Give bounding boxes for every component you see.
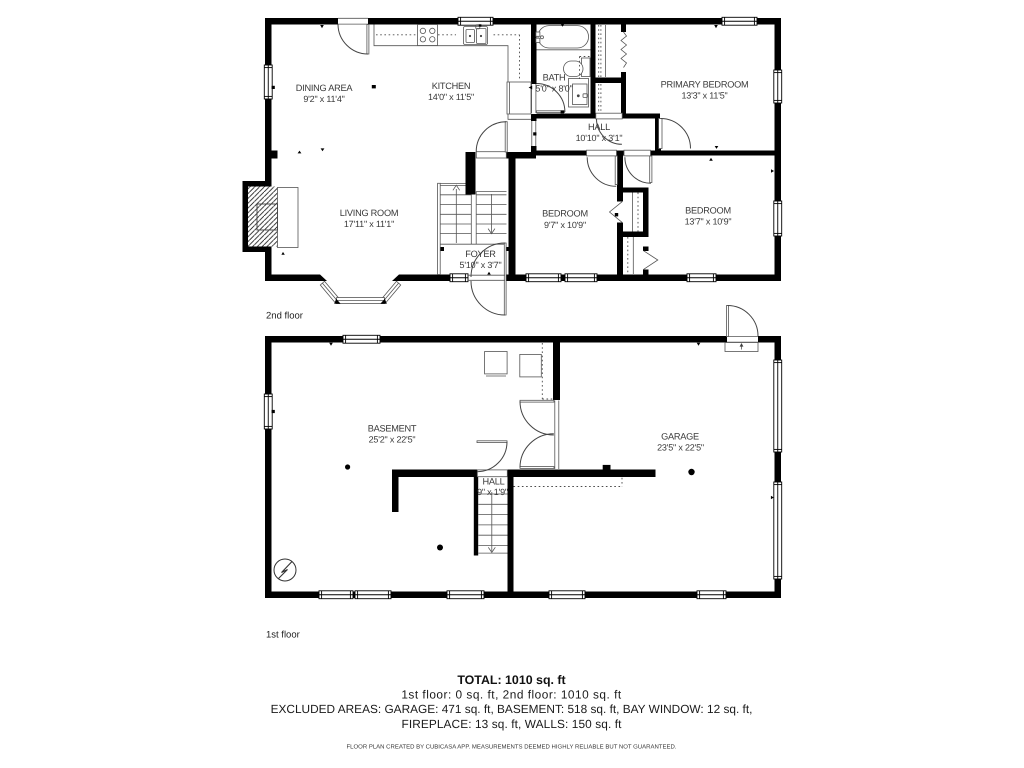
- svg-text:10'10" x 3'1": 10'10" x 3'1": [576, 133, 623, 143]
- svg-text:5'10" x 3'7": 5'10" x 3'7": [460, 260, 502, 270]
- svg-text:KITCHEN: KITCHEN: [432, 81, 471, 91]
- svg-text:17'11" x 11'1": 17'11" x 11'1": [344, 219, 394, 229]
- svg-text:PRIMARY BEDROOM: PRIMARY BEDROOM: [661, 80, 749, 90]
- svg-text:FIREPLACE: 13 sq. ft, WALLS: 1: FIREPLACE: 13 sq. ft, WALLS: 150 sq. ft: [401, 717, 622, 731]
- svg-text:GARAGE: GARAGE: [661, 432, 699, 442]
- svg-text:HALL: HALL: [483, 477, 505, 487]
- svg-text:14'0" x 11'5": 14'0" x 11'5": [428, 92, 474, 102]
- svg-text:EXCLUDED AREAS: GARAGE: 471 sq: EXCLUDED AREAS: GARAGE: 471 sq. ft, BASE…: [271, 702, 753, 716]
- svg-text:FLOOR PLAN CREATED BY CUBICASA: FLOOR PLAN CREATED BY CUBICASA APP. MEAS…: [347, 744, 677, 751]
- svg-text:13'7" x 10'9": 13'7" x 10'9": [685, 217, 732, 227]
- svg-text:DINING AREA: DINING AREA: [296, 83, 354, 93]
- svg-text:BEDROOM: BEDROOM: [685, 205, 731, 215]
- svg-text:13'3" x 11'5": 13'3" x 11'5": [681, 91, 727, 101]
- svg-text:9" x 1'9": 9" x 1'9": [477, 487, 508, 497]
- svg-text:LIVING ROOM: LIVING ROOM: [340, 208, 399, 218]
- svg-text:23'5" x 22'5": 23'5" x 22'5": [657, 443, 704, 453]
- svg-text:2nd floor: 2nd floor: [266, 311, 303, 322]
- svg-text:25'2" x 22'5": 25'2" x 22'5": [369, 435, 416, 445]
- svg-text:1st floor: 0 sq. ft, 2nd floor: 1st floor: 0 sq. ft, 2nd floor: 1010 sq.…: [401, 688, 622, 702]
- svg-text:1st floor: 1st floor: [266, 630, 300, 641]
- svg-text:FOYER: FOYER: [465, 249, 496, 259]
- svg-text:9'7" x 10'9": 9'7" x 10'9": [544, 220, 586, 230]
- svg-text:9'2" x 11'4": 9'2" x 11'4": [303, 94, 344, 104]
- svg-text:BATH: BATH: [543, 72, 566, 82]
- svg-text:BEDROOM: BEDROOM: [542, 208, 588, 218]
- svg-text:5'0" x 8'0": 5'0" x 8'0": [535, 84, 572, 94]
- svg-text:BASEMENT: BASEMENT: [368, 424, 417, 434]
- svg-text:TOTAL: 1010 sq. ft: TOTAL: 1010 sq. ft: [457, 673, 565, 687]
- svg-text:HALL: HALL: [588, 122, 610, 132]
